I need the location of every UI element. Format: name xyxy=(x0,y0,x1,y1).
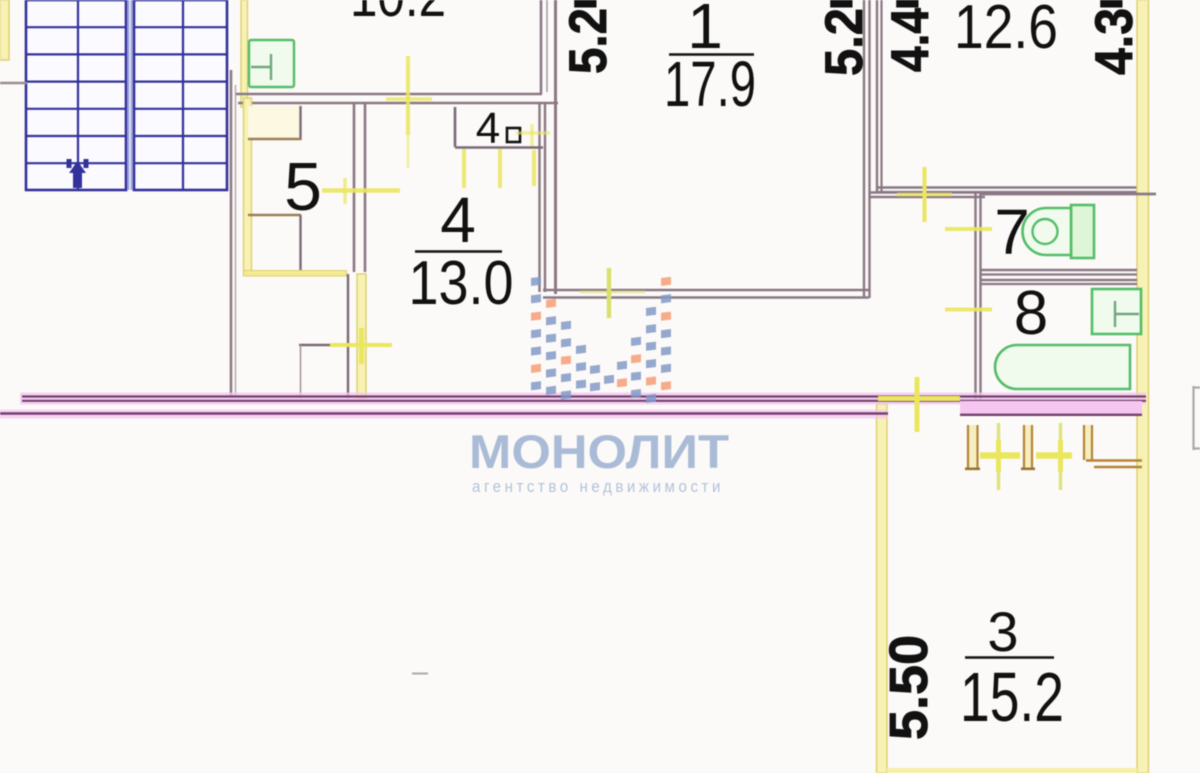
svg-text:12.6: 12.6 xyxy=(954,0,1058,62)
svg-text:10.2: 10.2 xyxy=(350,0,446,29)
svg-text:5: 5 xyxy=(284,149,322,225)
svg-text:4.3: 4.3 xyxy=(1085,8,1144,75)
svg-text:4: 4 xyxy=(440,184,476,256)
svg-text:5.2: 5.2 xyxy=(559,8,618,74)
svg-text:5.2: 5.2 xyxy=(815,8,874,76)
svg-text:4: 4 xyxy=(476,104,500,153)
svg-text:13.0: 13.0 xyxy=(409,249,514,318)
svg-text:агентство недвижимости: агентство недвижимости xyxy=(472,477,724,496)
svg-text:МОНОЛИТ: МОНОЛИТ xyxy=(469,425,729,478)
svg-text:3: 3 xyxy=(987,600,1018,663)
svg-text:8: 8 xyxy=(1014,279,1048,348)
svg-text:15.2: 15.2 xyxy=(960,658,1064,736)
svg-text:5.50: 5.50 xyxy=(879,635,939,740)
svg-text:17.9: 17.9 xyxy=(664,48,756,120)
svg-text:4.4: 4.4 xyxy=(881,8,940,72)
